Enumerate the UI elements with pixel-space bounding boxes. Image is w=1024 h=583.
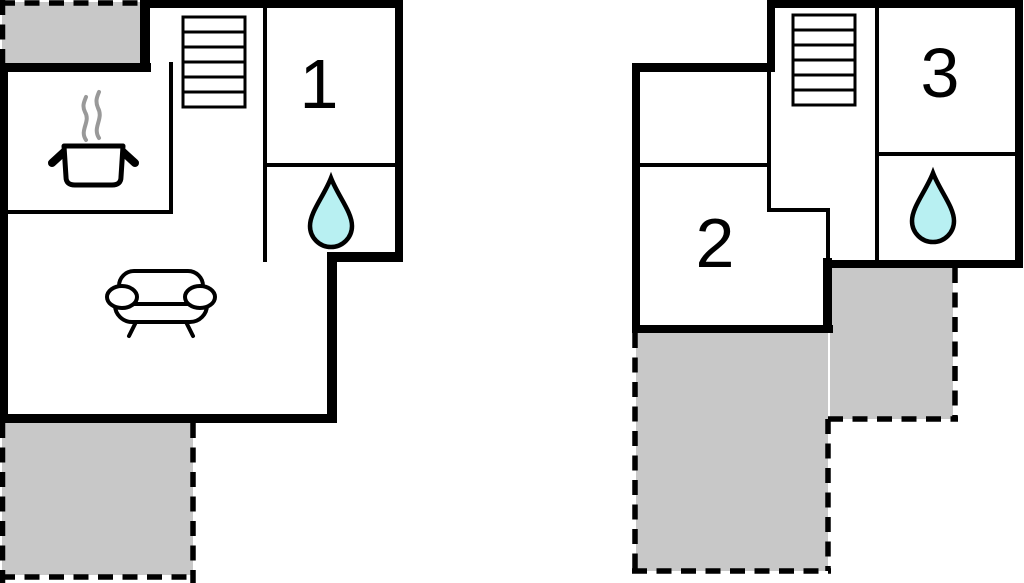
steam-icon xyxy=(96,92,99,138)
floor-plan: 1 xyxy=(0,0,1024,583)
stairs-icon xyxy=(793,15,855,105)
balcony-area xyxy=(2,2,143,65)
left-unit: 1 xyxy=(0,0,403,583)
steam-icon xyxy=(83,97,86,140)
terrace-area xyxy=(830,268,953,419)
room-1-label: 1 xyxy=(300,45,339,123)
sofa-armrest-right xyxy=(185,286,215,308)
right-unit: 2 3 xyxy=(632,0,1023,574)
stairs-icon xyxy=(183,17,245,107)
cooking-pot-icon xyxy=(52,92,135,185)
floor-plan-canvas: 1 xyxy=(0,0,1024,583)
room-2-label: 2 xyxy=(696,204,735,282)
water-drop-icon xyxy=(310,178,352,247)
sofa-icon xyxy=(107,271,215,336)
terrace-area xyxy=(2,423,193,575)
room-3-label: 3 xyxy=(921,34,960,112)
water-drop-icon xyxy=(912,173,954,242)
pot-body xyxy=(64,146,123,185)
sofa-armrest-left xyxy=(107,286,137,308)
terrace-area xyxy=(636,333,828,571)
